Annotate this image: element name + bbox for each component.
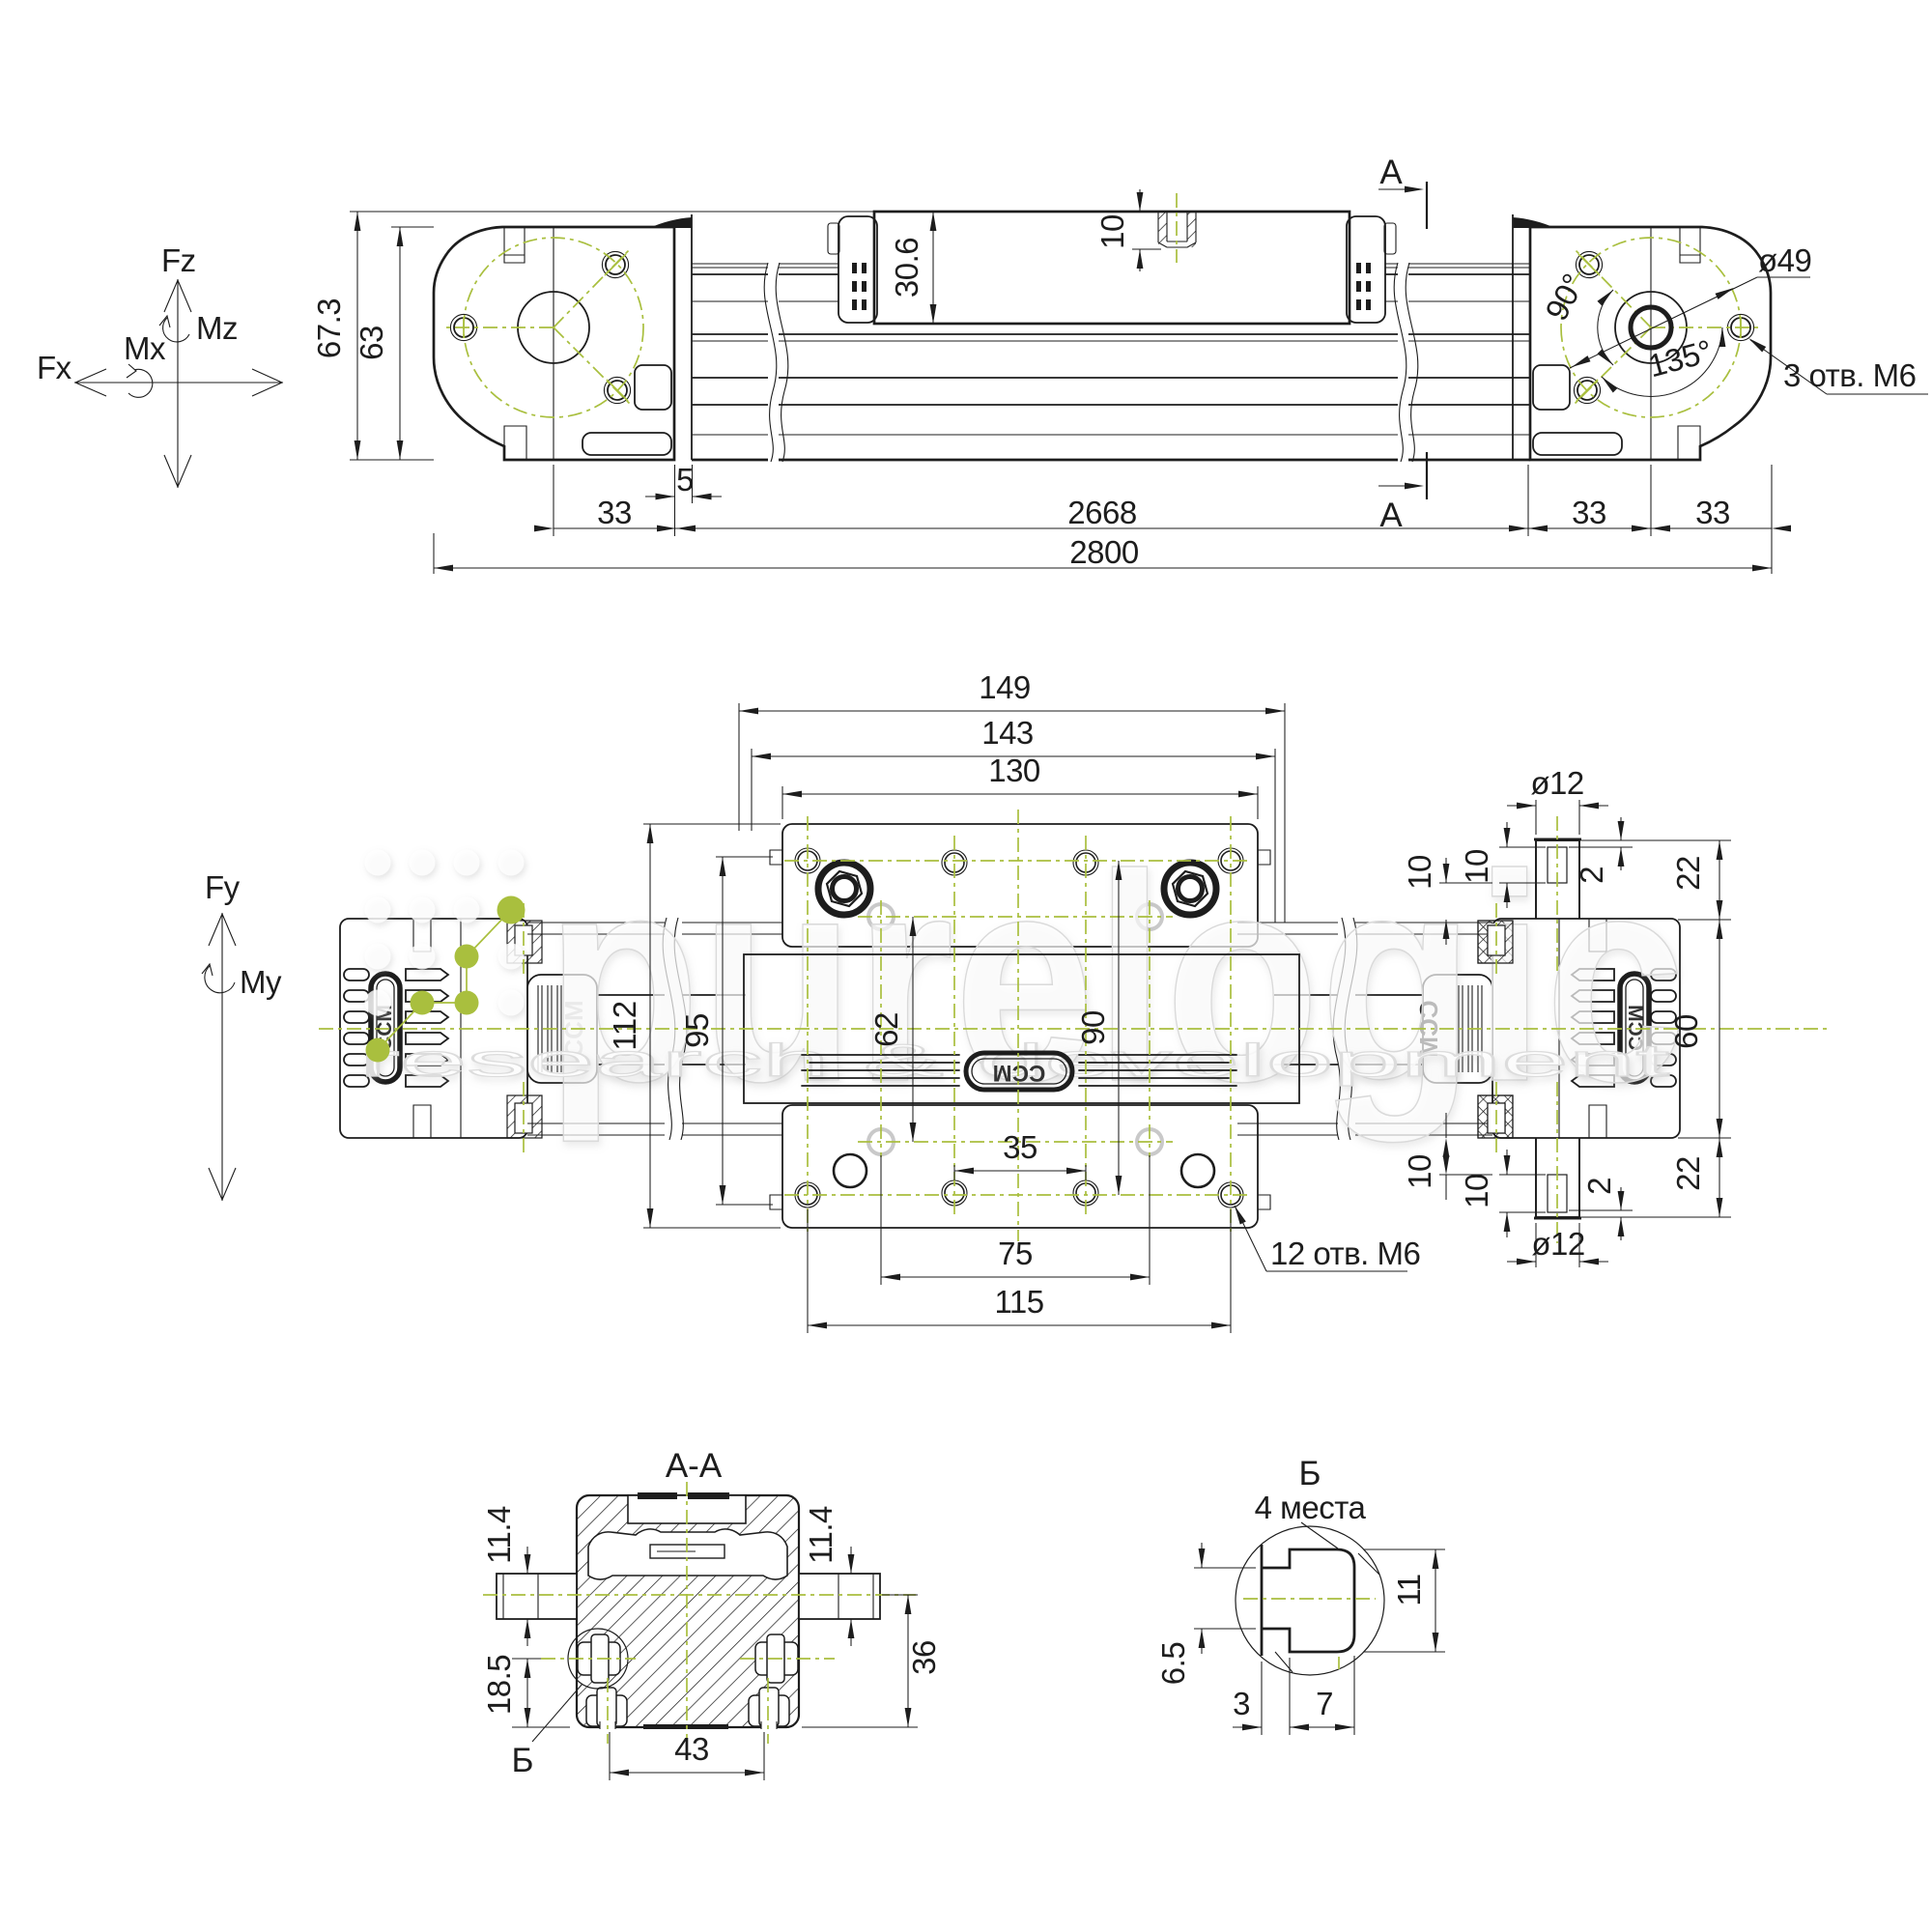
svg-text:6.5: 6.5	[1155, 1642, 1191, 1685]
svg-text:2: 2	[1574, 867, 1609, 884]
svg-text:130: 130	[988, 753, 1040, 788]
svg-text:10: 10	[1459, 849, 1494, 884]
svg-text:My: My	[240, 964, 282, 1000]
svg-text:90: 90	[1075, 1010, 1111, 1045]
svg-text:149: 149	[979, 669, 1031, 705]
svg-text:33: 33	[1572, 495, 1606, 530]
svg-text:Fy: Fy	[205, 869, 241, 905]
svg-text:ø49: ø49	[1758, 242, 1811, 278]
svg-text:22: 22	[1670, 1156, 1706, 1191]
svg-text:33: 33	[1695, 495, 1730, 530]
svg-text:Mz: Mz	[196, 310, 238, 346]
svg-text:2800: 2800	[1069, 534, 1139, 570]
svg-text:CCM: CCM	[993, 1060, 1046, 1086]
svg-text:10: 10	[1402, 1154, 1437, 1189]
svg-text:63: 63	[354, 326, 389, 360]
svg-text:Mx: Mx	[124, 330, 166, 366]
svg-text:11.4: 11.4	[481, 1506, 517, 1564]
svg-text:A: A	[1379, 154, 1403, 191]
svg-text:62: 62	[868, 1012, 904, 1047]
svg-text:60: 60	[1668, 1014, 1704, 1049]
svg-text:Fz: Fz	[161, 242, 196, 278]
svg-text:Б: Б	[1299, 1455, 1321, 1492]
svg-text:11: 11	[1391, 1574, 1427, 1605]
svg-text:30.6: 30.6	[889, 238, 924, 298]
svg-text:4 места: 4 места	[1255, 1490, 1367, 1525]
svg-text:A-A: A-A	[666, 1447, 723, 1485]
svg-text:11.4: 11.4	[803, 1506, 838, 1564]
svg-text:143: 143	[981, 715, 1034, 751]
svg-text:95: 95	[679, 1013, 715, 1048]
svg-text:75: 75	[998, 1236, 1033, 1271]
svg-text:ø12: ø12	[1531, 1226, 1584, 1262]
svg-text:purelogic: purelogic	[546, 813, 1686, 1145]
svg-text:2: 2	[1581, 1178, 1617, 1195]
svg-text:Fx: Fx	[37, 350, 72, 385]
svg-text:10: 10	[1402, 855, 1437, 890]
svg-text:3 отв. М6: 3 отв. М6	[1783, 357, 1916, 393]
svg-text:5: 5	[676, 462, 694, 497]
svg-text:67.3: 67.3	[311, 298, 347, 358]
svg-text:ø12: ø12	[1530, 765, 1583, 801]
svg-text:10: 10	[1459, 1174, 1494, 1208]
svg-text:18.5: 18.5	[481, 1655, 517, 1715]
svg-text:Б: Б	[512, 1742, 534, 1779]
svg-text:112: 112	[607, 1001, 642, 1050]
svg-text:33: 33	[597, 495, 632, 530]
svg-text:2668: 2668	[1067, 495, 1136, 530]
svg-text:10: 10	[1094, 214, 1130, 249]
svg-text:7: 7	[1316, 1686, 1333, 1721]
svg-text:35: 35	[1003, 1129, 1037, 1165]
svg-text:22: 22	[1670, 856, 1706, 891]
svg-text:115: 115	[994, 1284, 1043, 1320]
svg-text:12 отв. М6: 12 отв. М6	[1270, 1236, 1420, 1271]
svg-text:3: 3	[1233, 1686, 1250, 1721]
svg-text:43: 43	[674, 1731, 709, 1767]
svg-text:36: 36	[906, 1640, 942, 1675]
